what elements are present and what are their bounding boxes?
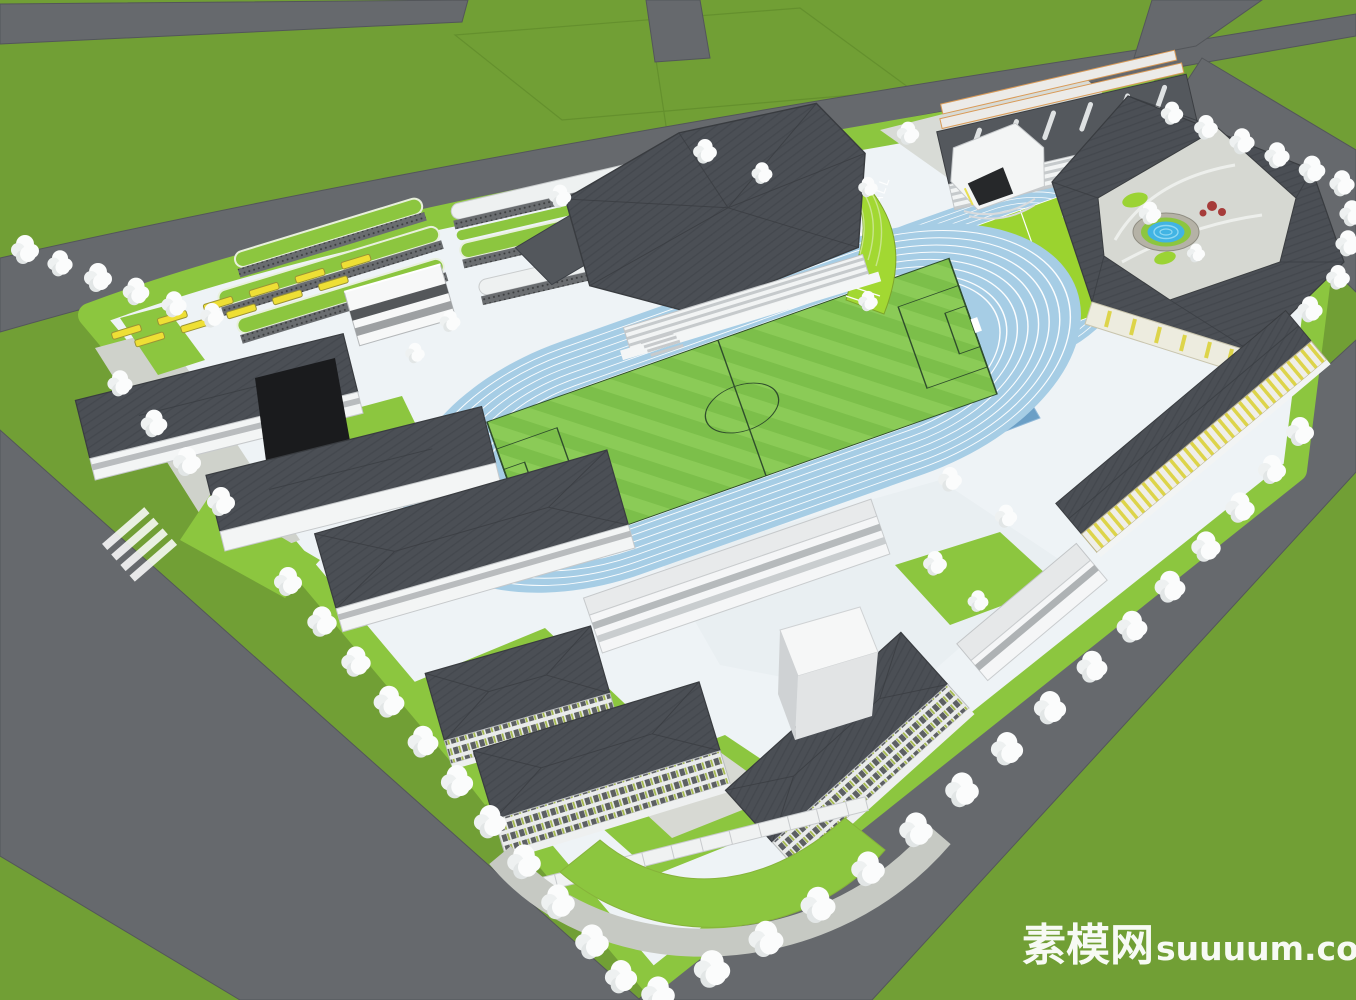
campus-render: BASKETBALL [0, 0, 1356, 1000]
road-top-stub [646, 0, 710, 62]
watermark-site-name: 素模网 [1022, 920, 1154, 971]
watermark-domain: suuuum.com [1156, 929, 1356, 968]
render-viewport: BASKETBALL [0, 0, 1356, 1000]
